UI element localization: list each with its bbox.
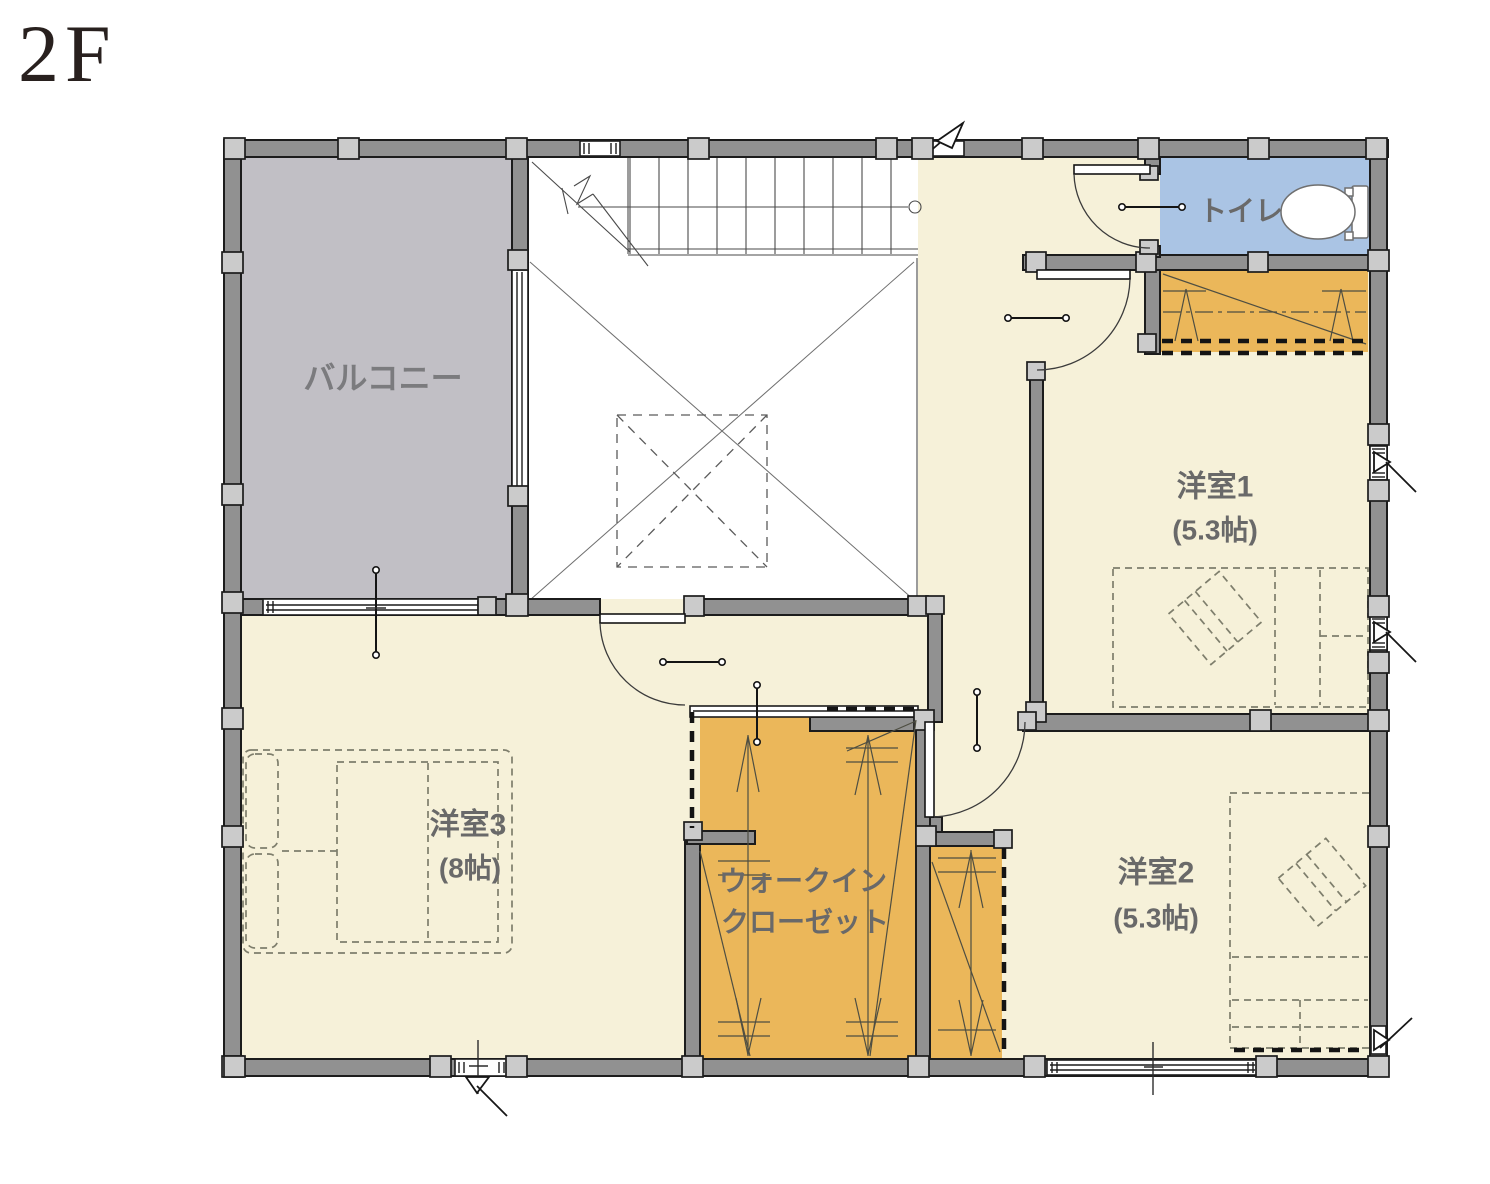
wall-void-bottom <box>700 599 930 615</box>
floorplan-page: 2F バルコニー トイレ 洋室1 (5.3帖) 洋室3 (8帖) ウォークイン … <box>0 0 1490 1184</box>
wall-wic-left-lower <box>685 830 700 1059</box>
floorplan-2f: 2F バルコニー トイレ 洋室1 (5.3帖) 洋室3 (8帖) ウォークイン … <box>0 0 1490 1184</box>
room-label-toilet: トイレ <box>1199 196 1283 227</box>
room-label-wic-line1: ウォークイン <box>719 866 887 897</box>
stairwell-void-floor <box>528 157 918 599</box>
floor-title: 2F <box>18 8 117 99</box>
toilet-fixture-icon <box>1281 185 1368 240</box>
window-top-stair <box>580 141 620 156</box>
wall-top <box>224 140 1388 157</box>
room-label-wic-line2: クローゼット <box>721 907 889 938</box>
wall-toilet-bottom <box>1023 255 1388 270</box>
room-size-bedroom1: (5.3帖) <box>1172 515 1258 546</box>
room-label-balcony: バルコニー <box>303 360 462 396</box>
wall-wic-top-right <box>810 717 916 731</box>
wic-sliding-door <box>690 706 918 717</box>
wall-bedroom1-left <box>1030 370 1043 714</box>
wall-bedroom1-bottom <box>1023 714 1388 731</box>
room-label-bedroom1: 洋室1 <box>1177 470 1254 504</box>
room-label-bedroom2: 洋室2 <box>1118 856 1195 890</box>
window-balcony-right <box>512 270 528 488</box>
room-label-bedroom3: 洋室3 <box>430 808 507 842</box>
room-size-bedroom2: (5.3帖) <box>1113 903 1199 934</box>
room-size-bedroom3: (8帖) <box>439 853 501 884</box>
wall-hall-bedroom2-upper <box>928 597 942 722</box>
